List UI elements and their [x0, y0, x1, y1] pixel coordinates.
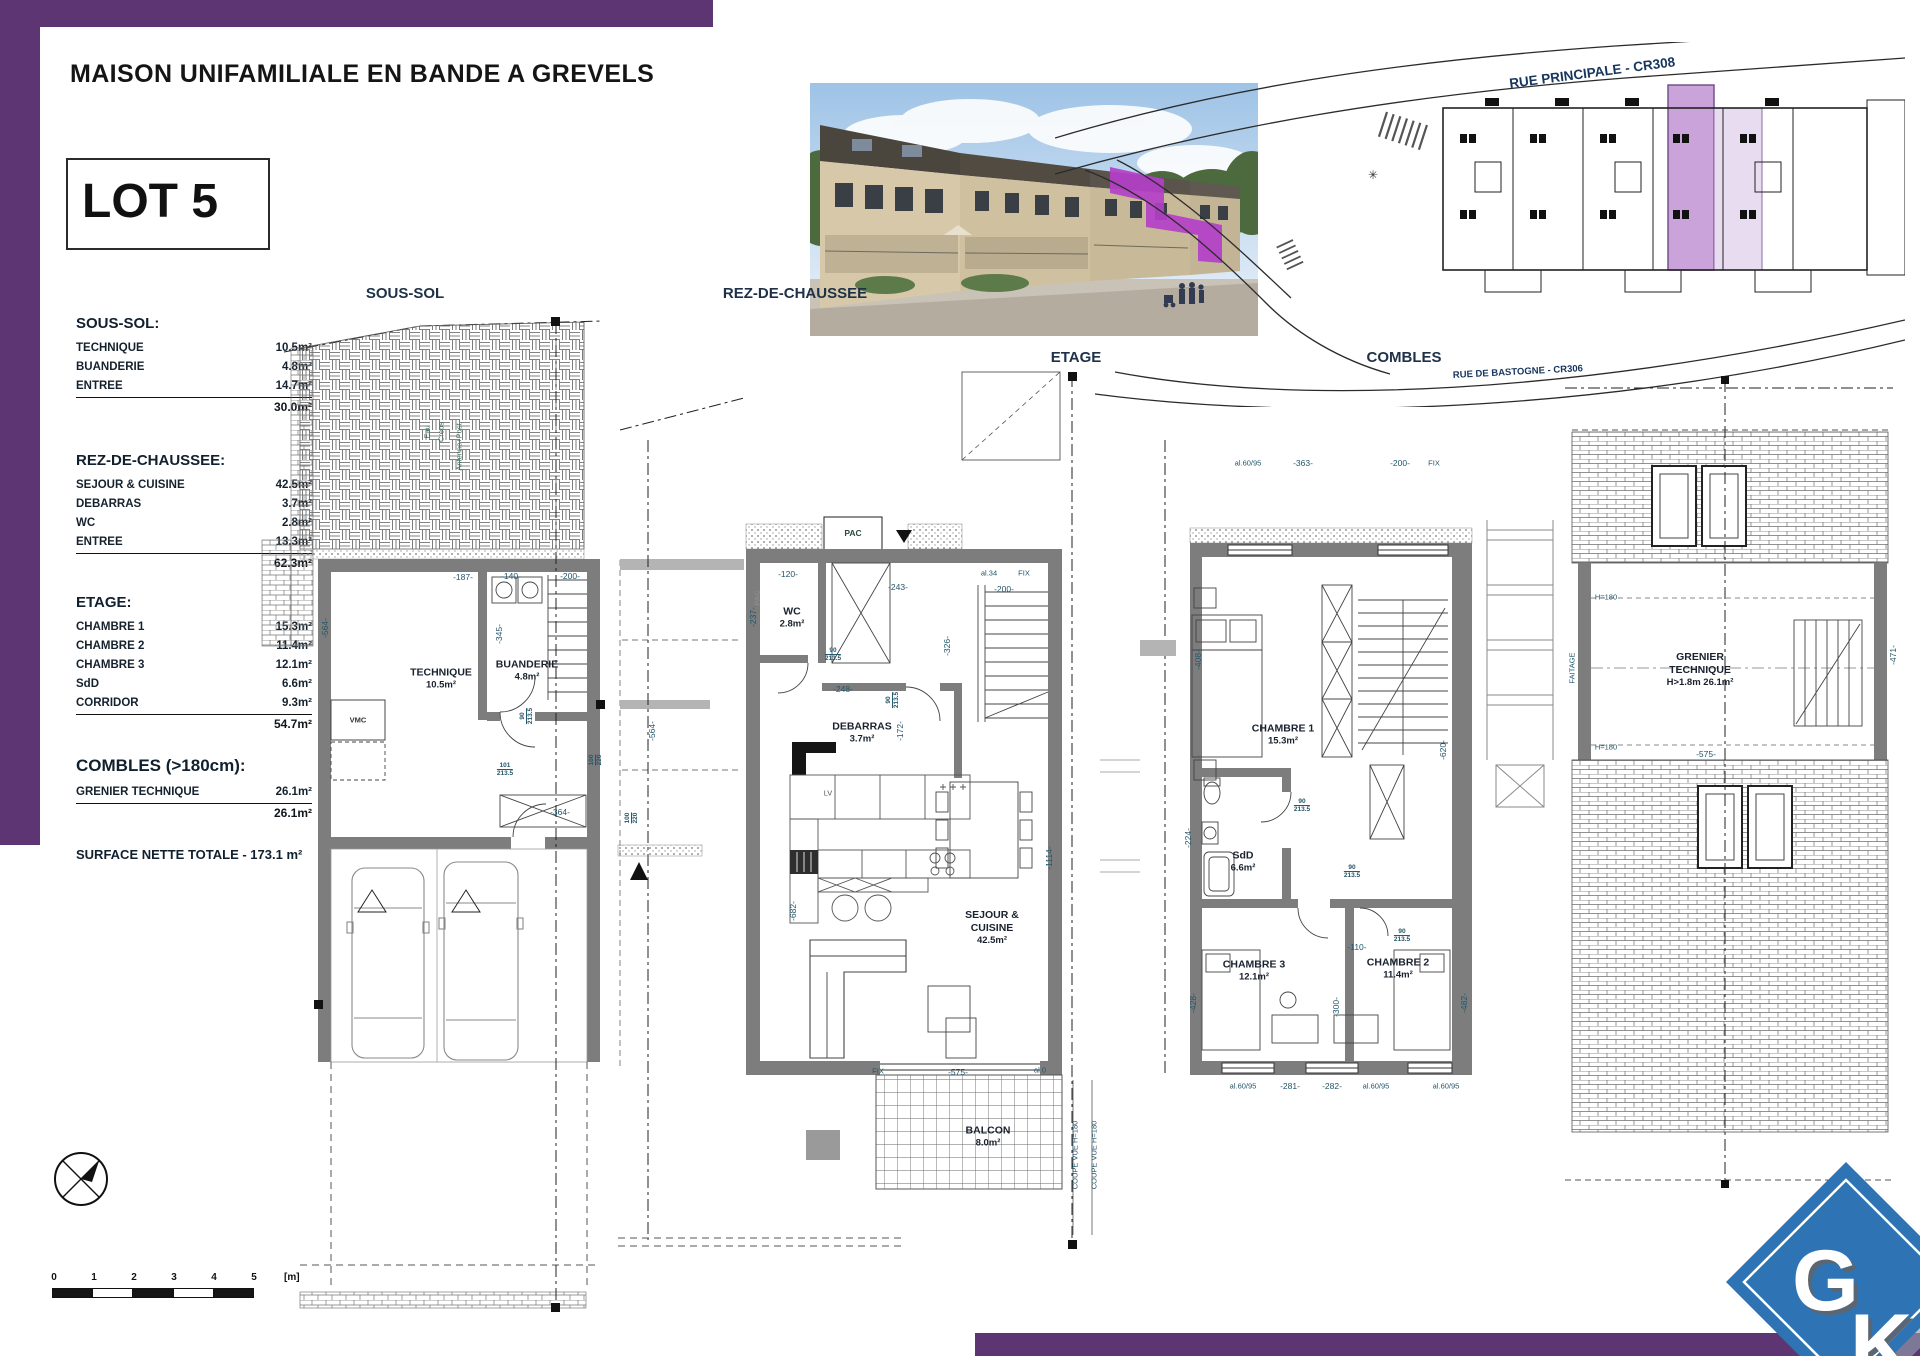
- al-label: al.0: [1034, 1066, 1046, 1075]
- al-label: al.34: [981, 569, 997, 578]
- height-label: H=180: [1595, 593, 1617, 602]
- dim-label: -237-: [748, 607, 758, 627]
- height-label: H=180: [1595, 743, 1617, 752]
- door-size-label: 90213.5: [825, 647, 841, 663]
- logo-letter-g: G: [1792, 1233, 1859, 1329]
- dim-label: -682-: [788, 901, 798, 921]
- heading-combles: COMBLES: [1367, 349, 1442, 366]
- window-label: al.60/95: [1433, 1082, 1460, 1091]
- dim-label: -224-: [1183, 828, 1193, 848]
- scale-bar: 0 1 2 3 4 5 [m]: [52, 1272, 312, 1312]
- heading-etage: ETAGE: [1051, 349, 1102, 366]
- dim-label: -200-: [994, 584, 1014, 594]
- scale-tick: 4: [211, 1272, 217, 1283]
- utility-label: Antenne+Post: [455, 423, 464, 470]
- scale-unit: [m]: [284, 1272, 300, 1283]
- door-size-label: 90213.5: [1394, 928, 1410, 944]
- dim-label: -471-: [1888, 645, 1898, 665]
- room-label-chambre1: CHAMBRE 115.3m²: [1252, 723, 1314, 748]
- scale-tick: 3: [171, 1272, 177, 1283]
- room-label-chambre3: CHAMBRE 312.1m²: [1223, 959, 1285, 984]
- room-label-grenier: GRENIERTECHNIQUEH>1.8m 26.1m²: [1667, 651, 1734, 689]
- dim-label: -345-: [494, 624, 504, 644]
- scale-tick: 1: [91, 1272, 97, 1283]
- dim-label: -564-: [320, 618, 330, 638]
- dim-label: -482-: [1459, 993, 1469, 1013]
- scale-tick: 0: [51, 1272, 57, 1283]
- room-label-sejour: SEJOUR &CUISINE42.5m²: [965, 909, 1019, 947]
- plan-combles-drawing: [1565, 376, 1893, 1188]
- room-label-technique: TECHNIQUE10.5m²: [410, 667, 472, 692]
- coupe-label: COUPE VUE H=180: [1071, 1121, 1080, 1190]
- fix-label: FIX: [1428, 459, 1440, 468]
- room-label-chambre2: CHAMBRE 211.4m²: [1367, 957, 1429, 982]
- dim-label: -364-: [550, 807, 570, 817]
- fix-label: FIX: [1018, 569, 1030, 578]
- dim-label: -326-: [942, 636, 952, 656]
- coupe-label: COUPE VUE H=180: [1090, 1121, 1099, 1190]
- room-label-buanderie: BUANDERIE4.8m²: [496, 659, 558, 684]
- fix-label: FIX: [872, 1067, 884, 1076]
- plan-sheet: MAISON UNIFAMILIALE EN BANDE A GREVELS L…: [0, 0, 1920, 1356]
- dim-label: -408-: [1193, 650, 1203, 670]
- heading-rdc: REZ-DE-CHAUSSEE: [723, 285, 867, 302]
- dim-label: -140-: [501, 571, 521, 581]
- utility-label: Creos: [437, 422, 446, 442]
- dim-label: -1114-: [1044, 846, 1054, 869]
- window-label: al.60/95: [1230, 1082, 1257, 1091]
- dim-label: -575-: [948, 1067, 968, 1077]
- door-size-label: 90213.5: [519, 708, 535, 724]
- lv-label: LV: [824, 789, 833, 798]
- room-label-wc: WC2.8m²: [780, 606, 805, 631]
- logo-letter-k: K: [1850, 1297, 1912, 1356]
- dim-label: -200-: [560, 571, 580, 581]
- door-size-label: 90213.5: [1294, 798, 1310, 814]
- door-size-label: 90213.5: [1344, 864, 1360, 880]
- room-label-balcon: BALCON8.0m²: [966, 1125, 1011, 1150]
- dim-label: -620-: [1438, 740, 1448, 760]
- plan-rdc-drawing: [618, 372, 1092, 1249]
- dim-label: -282-: [1322, 1081, 1342, 1091]
- faitage-label: FAITAGE: [1568, 652, 1577, 683]
- dim-label: -243-: [888, 582, 908, 592]
- door-size-label: 90213.5: [885, 692, 901, 708]
- dim-label: -248-: [833, 684, 853, 694]
- dim-label: -564-: [647, 721, 657, 741]
- pac-side-label: PAC: [753, 590, 762, 605]
- room-label-debarras: DEBARRAS3.7m²: [832, 721, 892, 746]
- dim-label: -187-: [453, 572, 473, 582]
- window-label: al.60/95: [1235, 459, 1262, 468]
- scale-tick: 5: [251, 1272, 257, 1283]
- heading-sous-sol: SOUS-SOL: [366, 285, 444, 302]
- door-size-label: 100220: [624, 813, 640, 824]
- dim-label: -575-: [1696, 749, 1716, 759]
- dim-label: -110-: [1347, 942, 1366, 952]
- dim-label: -200-: [1390, 458, 1410, 468]
- dim-label: -300-: [1331, 997, 1341, 1017]
- utility-label: Eau: [423, 425, 432, 438]
- dim-label: -281-: [1280, 1081, 1300, 1091]
- door-size-label: 101213.5: [497, 762, 513, 778]
- scale-tick: 2: [131, 1272, 137, 1283]
- plan-etage-drawing: [1100, 440, 1553, 1075]
- floorplan-linework: [0, 0, 1920, 1356]
- window-label: al.60/95: [1363, 1082, 1390, 1091]
- gk-logo: G G K K: [1726, 1162, 1920, 1356]
- pac-label: PAC: [844, 528, 861, 538]
- dim-label: -120-: [778, 569, 798, 579]
- vmc-label: VMC: [350, 716, 367, 725]
- compass-icon: [48, 1146, 114, 1212]
- door-size-label: 100220: [588, 755, 604, 766]
- dim-label: -172-: [895, 721, 905, 741]
- dim-label: -363-: [1293, 458, 1313, 468]
- room-label-sdd: SdD6.6m²: [1231, 850, 1256, 875]
- dim-label: -428-: [1188, 993, 1198, 1013]
- scale-bar-segments: [52, 1288, 254, 1298]
